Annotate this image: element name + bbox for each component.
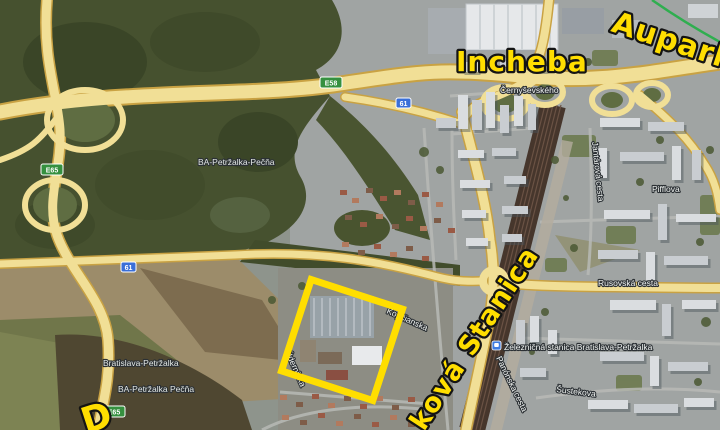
- shield-61-lower: 61: [121, 262, 136, 272]
- label-cernysevskeho: Černyševského: [500, 85, 559, 95]
- railway-station-icon: [492, 341, 501, 350]
- satellite-map-svg: E58 E65 E65 61 61 BA-Petržalka-Pečňa Bra…: [0, 0, 720, 430]
- shield-e58: E58: [320, 77, 342, 88]
- label-railway-station: Železničná stanica Bratislava-Petržalka: [504, 342, 653, 352]
- shield-e65-upper: E65: [41, 164, 63, 175]
- svg-text:E65: E65: [46, 168, 59, 175]
- shield-61-upper: 61: [396, 98, 411, 108]
- svg-text:61: 61: [400, 101, 408, 108]
- label-rusovska-cesta: Rusovská cesta: [598, 278, 658, 288]
- svg-text:E58: E58: [325, 81, 338, 88]
- label-ba-petrzalka-pecna-field: BA-Petržalka Pečňa: [118, 384, 194, 394]
- label-ba-petrzalka-pecna-forest: BA-Petržalka-Pečňa: [198, 157, 275, 167]
- label-bratislava-petrzalka: Bratislava-Petržalka: [103, 358, 179, 368]
- annotation-incheba: Incheba: [456, 45, 588, 78]
- label-pifflova: Pifflova: [652, 184, 680, 194]
- map-viewport[interactable]: E58 E65 E65 61 61 BA-Petržalka-Pečňa Bra…: [0, 0, 720, 430]
- svg-text:61: 61: [125, 265, 133, 272]
